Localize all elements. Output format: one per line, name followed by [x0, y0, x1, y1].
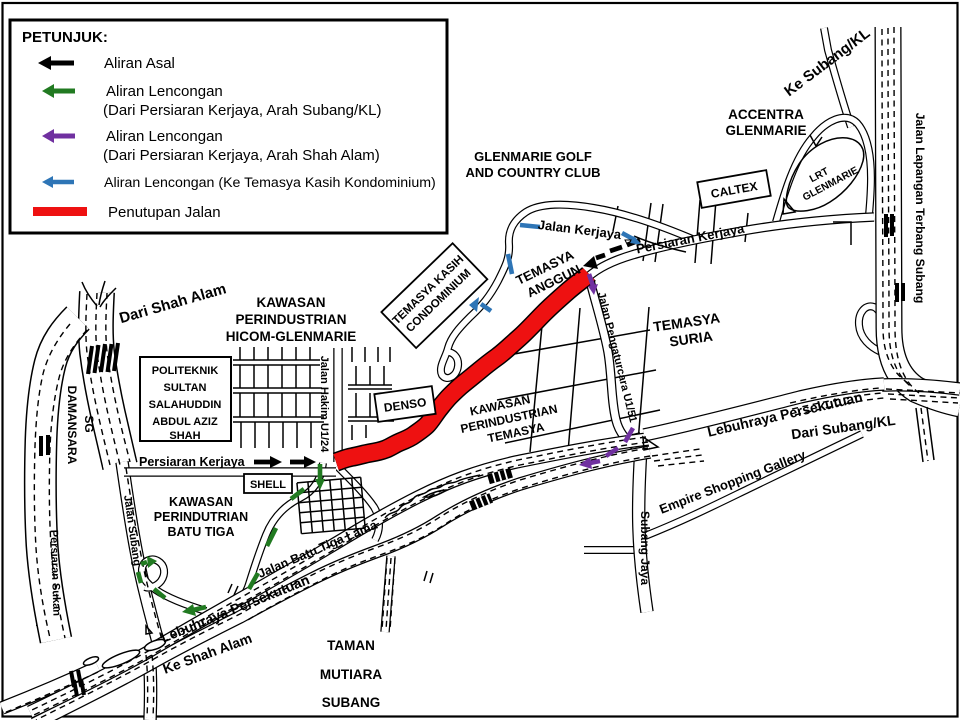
- svg-text:PERINDUTRIAN: PERINDUTRIAN: [154, 510, 248, 524]
- svg-text:PETUNJUK:: PETUNJUK:: [22, 29, 108, 46]
- svg-text:Jalan Hakim U1/24: Jalan Hakim U1/24: [318, 356, 330, 453]
- svg-text:SHELL: SHELL: [250, 479, 286, 491]
- svg-text:SHAH: SHAH: [169, 430, 200, 442]
- svg-text:BATU TIGA: BATU TIGA: [167, 525, 234, 539]
- svg-text:ABDUL AZIZ: ABDUL AZIZ: [152, 416, 218, 428]
- svg-text:KAWASAN: KAWASAN: [169, 495, 233, 509]
- svg-text:HICOM-GLENMARIE: HICOM-GLENMARIE: [226, 329, 357, 344]
- svg-text:(Dari Persiaran Kerjaya, Arah: (Dari Persiaran Kerjaya, Arah Shah Alam): [103, 147, 380, 164]
- svg-text:TAMAN: TAMAN: [327, 638, 375, 653]
- svg-text:Subang Jaya: Subang Jaya: [638, 511, 652, 585]
- svg-text:SUBANG: SUBANG: [322, 695, 381, 710]
- svg-text:Jalan Lapangan Terbang Subang: Jalan Lapangan Terbang Subang: [913, 113, 927, 304]
- svg-text:Aliran Lencongan: Aliran Lencongan: [106, 128, 223, 145]
- svg-text:SG: SG: [82, 415, 96, 432]
- svg-text:Aliran Asal: Aliran Asal: [104, 55, 175, 72]
- svg-text:SULTAN: SULTAN: [164, 382, 207, 394]
- svg-text:PERINDUSTRIAN: PERINDUSTRIAN: [235, 312, 346, 327]
- svg-text:POLITEKNIK: POLITEKNIK: [152, 365, 219, 377]
- svg-text:MUTIARA: MUTIARA: [320, 667, 382, 682]
- svg-text:Aliran Lencongan: Aliran Lencongan: [106, 83, 223, 100]
- svg-text:KAWASAN: KAWASAN: [256, 295, 325, 310]
- svg-text:GLENMARIE: GLENMARIE: [726, 123, 807, 138]
- svg-text:Aliran Lencongan (Ke Temasya K: Aliran Lencongan (Ke Temasya Kasih Kondo…: [104, 175, 436, 191]
- svg-text:SALAHUDDIN: SALAHUDDIN: [149, 399, 222, 411]
- svg-text:(Dari Persiaran Kerjaya, Arah: (Dari Persiaran Kerjaya, Arah Subang/KL): [103, 102, 381, 119]
- svg-text:GLENMARIE GOLF: GLENMARIE GOLF: [474, 149, 592, 164]
- svg-text:AND COUNTRY CLUB: AND COUNTRY CLUB: [465, 165, 600, 180]
- svg-text:Penutupan Jalan: Penutupan Jalan: [108, 204, 221, 221]
- svg-text:DAMANSARA: DAMANSARA: [65, 386, 79, 465]
- svg-text:ACCENTRA: ACCENTRA: [728, 107, 804, 122]
- svg-text:Persiaran Kerjaya: Persiaran Kerjaya: [139, 455, 246, 469]
